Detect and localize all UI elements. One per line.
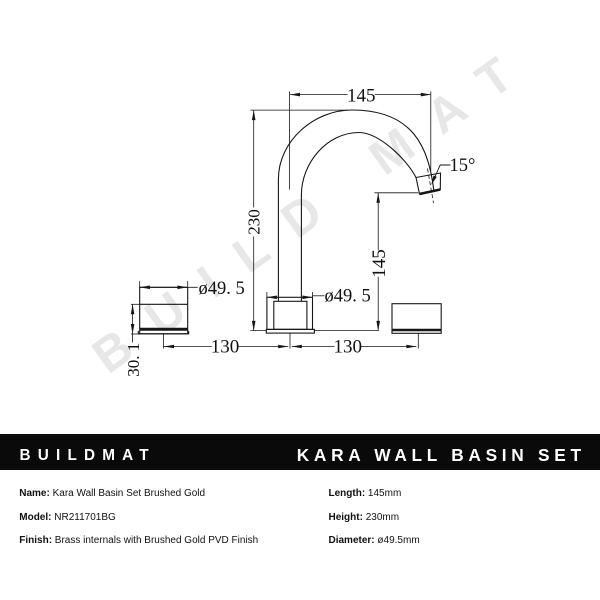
svg-text:ø49. 5: ø49. 5 [325, 287, 371, 307]
svg-text:145: 145 [347, 85, 376, 106]
svg-text:130: 130 [334, 336, 363, 357]
svg-text:30. 1: 30. 1 [124, 343, 143, 377]
svg-text:ø49. 5: ø49. 5 [199, 279, 245, 299]
svg-text:230: 230 [245, 209, 264, 235]
svg-text:15°: 15° [450, 156, 476, 176]
svg-text:145: 145 [369, 249, 390, 278]
svg-text:130: 130 [211, 336, 240, 357]
